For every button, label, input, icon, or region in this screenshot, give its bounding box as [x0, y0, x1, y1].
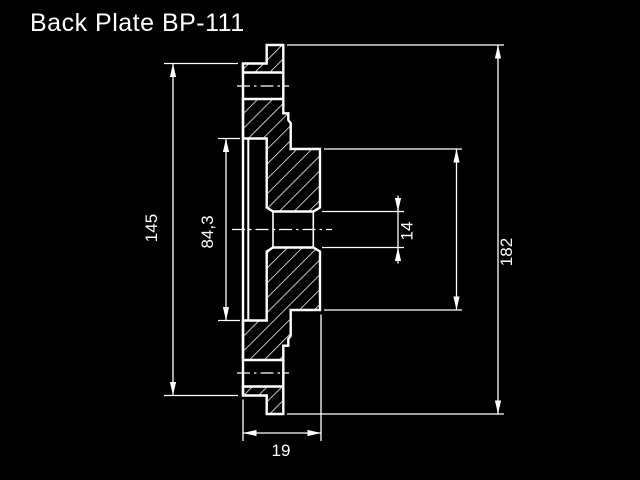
arrow-up-icon [170, 64, 176, 78]
section-lower-body [243, 248, 320, 361]
section-top-rim [243, 45, 283, 73]
dim-label-182: 182 [497, 238, 516, 266]
section-bottom-rim [243, 387, 283, 415]
dim-label-145: 145 [142, 214, 161, 242]
dimension-14: 14 [322, 196, 417, 264]
arrow-down-icon [170, 382, 176, 396]
arrow-right-icon [308, 430, 322, 436]
arrow-up-icon [395, 248, 401, 262]
arrow-down-icon [395, 198, 401, 212]
arrow-down-icon [495, 401, 501, 415]
dim-label-19: 19 [272, 441, 291, 460]
arrow-up-icon [495, 45, 501, 59]
arrow-left-icon [243, 430, 257, 436]
arrow-up-icon [453, 149, 459, 163]
drawing-canvas: Back Plate BP-111 [0, 0, 640, 480]
section-view: 145 84,3 14 [0, 0, 640, 480]
dimension-hub [324, 149, 462, 310]
section-upper-body [243, 99, 320, 212]
dimension-145: 145 [142, 64, 238, 396]
drawing-title: Back Plate BP-111 [30, 9, 245, 38]
arrow-down-icon [453, 297, 459, 311]
dim-label-14: 14 [398, 222, 417, 241]
dim-label-84-3: 84,3 [198, 215, 217, 248]
arrow-up-icon [223, 139, 229, 153]
arrow-down-icon [223, 307, 229, 321]
